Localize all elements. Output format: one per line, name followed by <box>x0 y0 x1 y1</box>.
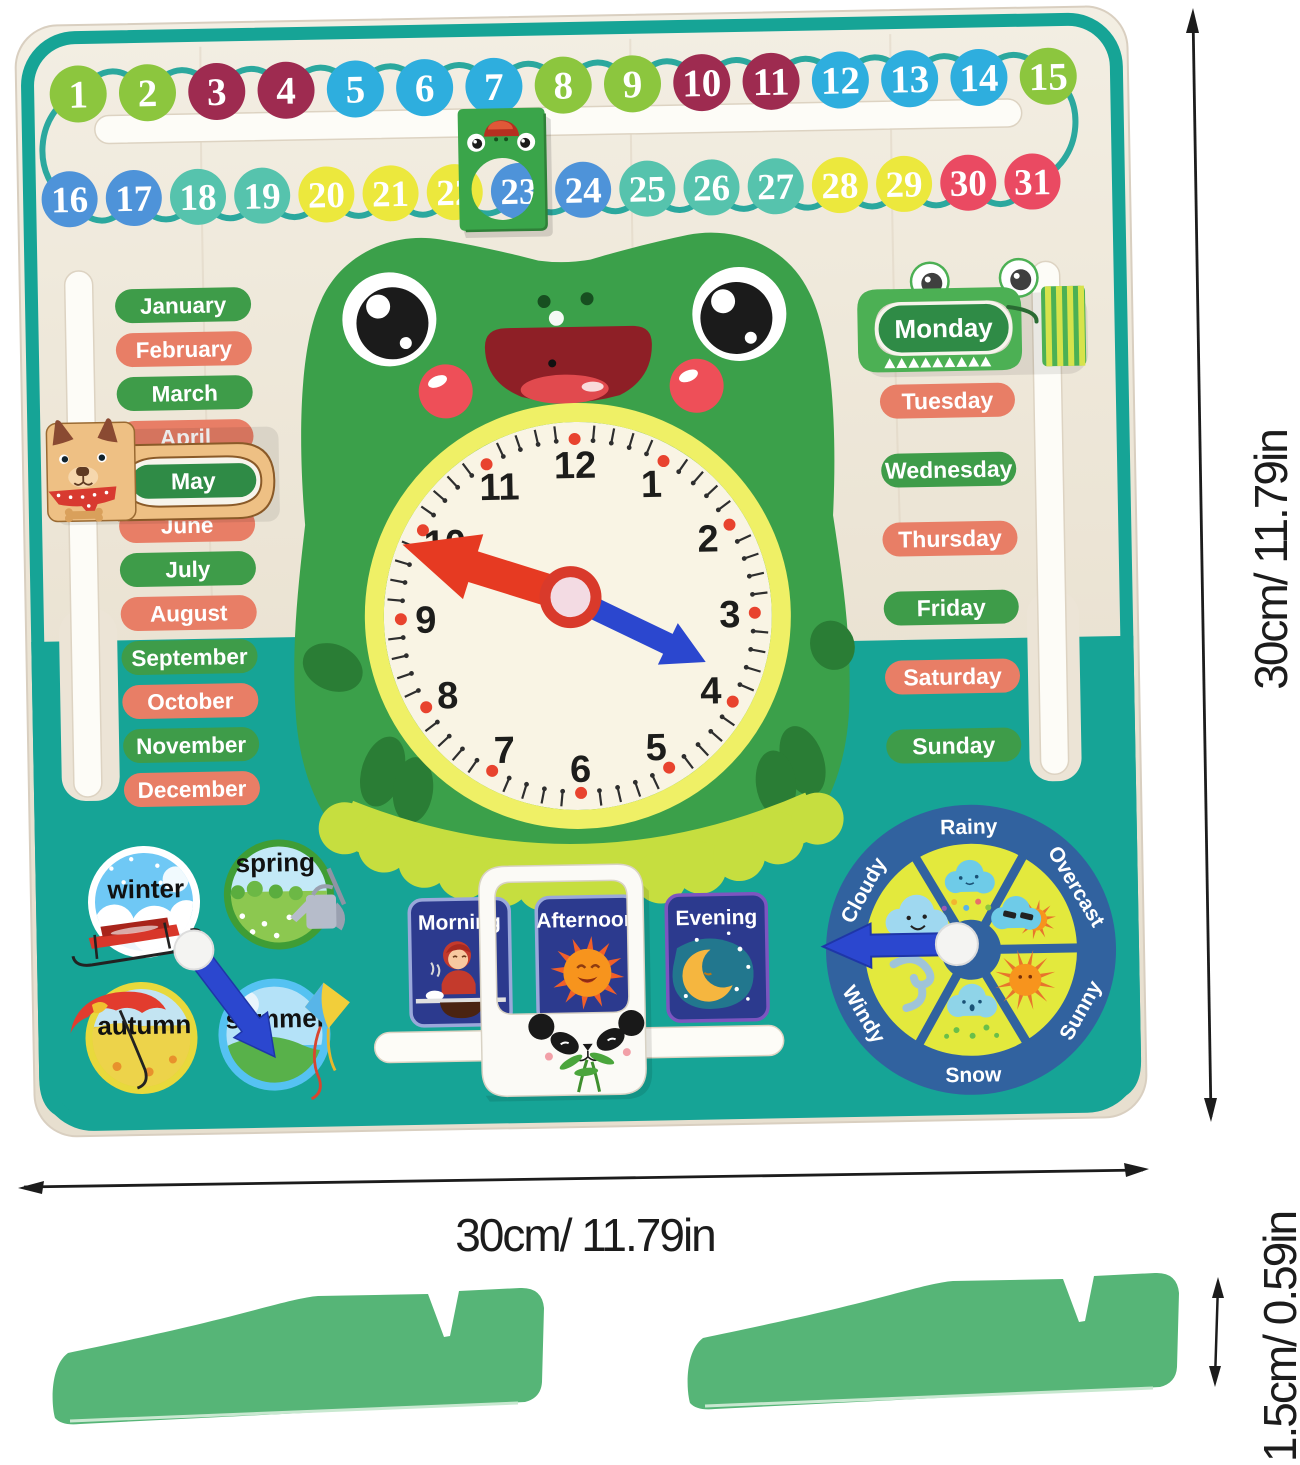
svg-text:13: 13 <box>890 58 930 102</box>
svg-text:2: 2 <box>137 72 157 115</box>
svg-text:Afternoon: Afternoon <box>536 908 637 933</box>
svg-text:9: 9 <box>415 600 437 642</box>
svg-text:November: November <box>136 732 247 759</box>
svg-text:18: 18 <box>179 177 217 219</box>
svg-text:17: 17 <box>115 178 153 220</box>
svg-text:14: 14 <box>959 57 999 101</box>
svg-text:12: 12 <box>820 59 860 103</box>
svg-text:19: 19 <box>243 176 281 218</box>
svg-text:Thursday: Thursday <box>898 525 1002 553</box>
svg-text:10: 10 <box>682 62 722 106</box>
svg-text:24: 24 <box>564 170 602 212</box>
svg-text:5: 5 <box>345 68 365 111</box>
svg-text:1: 1 <box>641 464 663 506</box>
svg-text:11: 11 <box>752 60 790 104</box>
svg-text:5: 5 <box>645 727 667 769</box>
svg-text:Rainy: Rainy <box>940 815 998 839</box>
svg-text:Tuesday: Tuesday <box>901 387 993 415</box>
svg-text:Wednesday: Wednesday <box>885 455 1013 483</box>
svg-text:August: August <box>150 600 228 626</box>
svg-text:31: 31 <box>1014 162 1052 204</box>
svg-text:30: 30 <box>949 163 987 205</box>
svg-text:27: 27 <box>757 167 795 209</box>
svg-text:Snow: Snow <box>945 1063 1002 1087</box>
svg-text:March: March <box>151 381 218 407</box>
svg-text:7: 7 <box>493 730 515 772</box>
svg-text:2: 2 <box>697 518 719 560</box>
svg-text:21: 21 <box>372 174 410 216</box>
svg-text:3: 3 <box>719 594 741 636</box>
svg-text:4: 4 <box>276 70 296 113</box>
svg-text:February: February <box>136 336 233 363</box>
svg-text:30cm/ 11.79in: 30cm/ 11.79in <box>455 1209 715 1261</box>
svg-text:28: 28 <box>821 166 859 208</box>
svg-text:July: July <box>165 557 211 583</box>
svg-text:7: 7 <box>484 66 504 109</box>
svg-text:8: 8 <box>553 64 573 107</box>
svg-text:Monday: Monday <box>894 312 993 344</box>
svg-text:winter: winter <box>106 873 184 904</box>
svg-text:Sunday: Sunday <box>912 732 996 760</box>
svg-text:1: 1 <box>68 73 88 116</box>
svg-text:29: 29 <box>885 164 923 206</box>
svg-text:6: 6 <box>570 749 592 791</box>
svg-text:15: 15 <box>1028 55 1068 99</box>
svg-text:8: 8 <box>437 675 459 717</box>
svg-text:9: 9 <box>622 63 642 106</box>
svg-text:26: 26 <box>693 168 731 210</box>
svg-text:6: 6 <box>415 67 435 110</box>
svg-text:autumn: autumn <box>97 1009 191 1041</box>
svg-text:16: 16 <box>51 180 89 222</box>
svg-text:11: 11 <box>479 466 520 509</box>
svg-text:3: 3 <box>207 71 227 114</box>
svg-text:25: 25 <box>628 169 666 211</box>
svg-text:Friday: Friday <box>917 594 987 621</box>
svg-text:4: 4 <box>700 670 722 712</box>
svg-text:Saturday: Saturday <box>903 663 1002 691</box>
svg-text:December: December <box>137 776 246 803</box>
svg-text:spring: spring <box>235 847 315 878</box>
svg-text:20: 20 <box>308 175 346 217</box>
svg-text:Evening: Evening <box>675 906 757 930</box>
svg-text:12: 12 <box>554 445 597 488</box>
svg-text:1.5cm/ 0.59in: 1.5cm/ 0.59in <box>1254 1212 1300 1462</box>
svg-text:May: May <box>171 468 216 495</box>
svg-text:30cm/ 11.79in: 30cm/ 11.79in <box>1245 430 1297 690</box>
svg-text:October: October <box>147 688 234 715</box>
svg-text:January: January <box>140 292 227 319</box>
svg-text:September: September <box>131 644 248 671</box>
